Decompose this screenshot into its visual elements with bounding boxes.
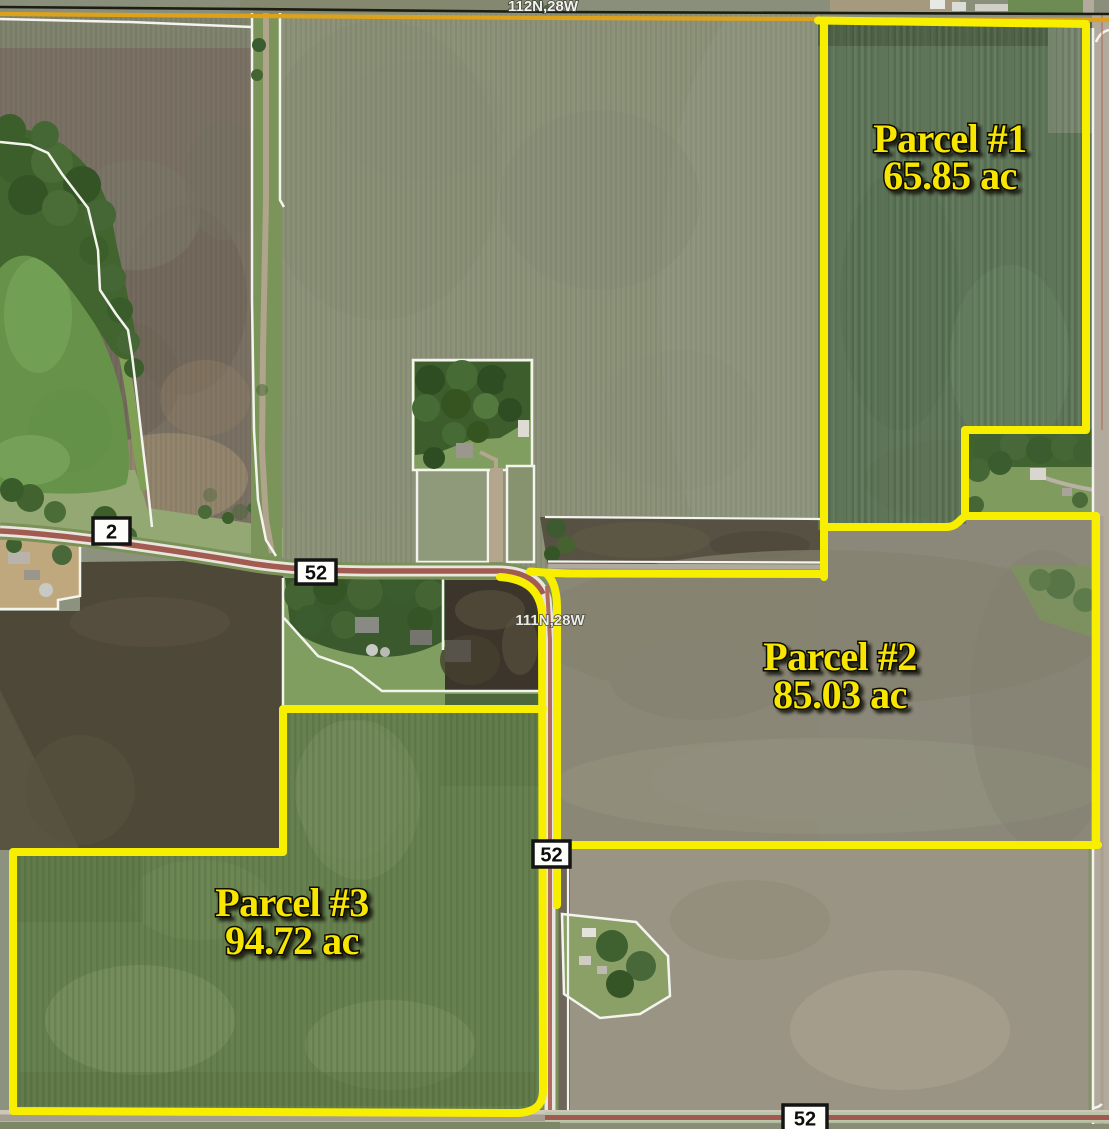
svg-text:112N,28W: 112N,28W bbox=[508, 0, 579, 15]
svg-text:65.85 ac: 65.85 ac bbox=[883, 153, 1017, 198]
svg-text:52: 52 bbox=[540, 845, 562, 867]
svg-text:52: 52 bbox=[794, 1109, 816, 1129]
svg-text:52: 52 bbox=[305, 563, 327, 585]
svg-text:94.72 ac: 94.72 ac bbox=[225, 918, 359, 963]
svg-text:85.03 ac: 85.03 ac bbox=[773, 672, 907, 717]
svg-text:2: 2 bbox=[106, 522, 117, 544]
svg-text:111N,28W: 111N,28W bbox=[515, 612, 585, 629]
